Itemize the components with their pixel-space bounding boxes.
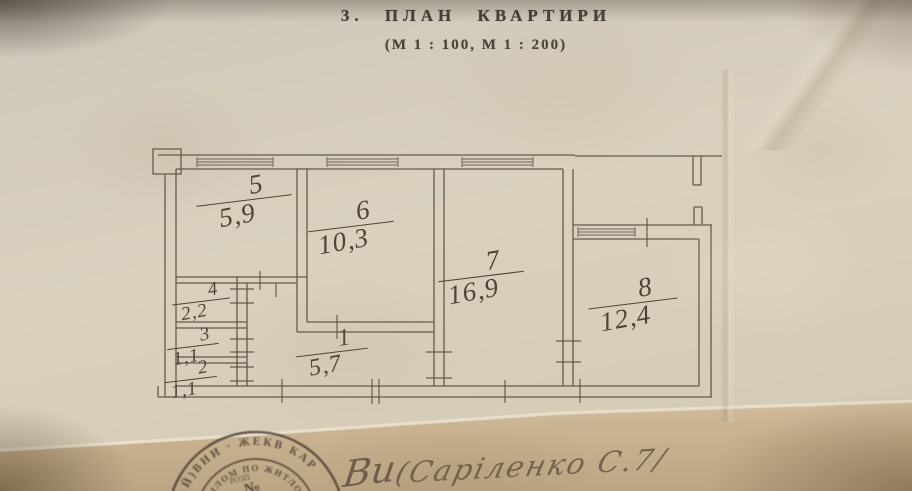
- scanned-document-page: 3. ПЛАН КВАРТИРИ (М 1 : 100, М 1 : 200): [0, 0, 912, 491]
- wall-lines: [153, 149, 722, 397]
- paper-fold-band: [0, 403, 912, 491]
- door-tick-marks: [230, 218, 647, 404]
- floor-plan-drawing: А (РАЙ)ВНИ · ЖЕКВ КАР ВІДДІЛОМ ПО ЖИТЛОВ…: [0, 0, 912, 491]
